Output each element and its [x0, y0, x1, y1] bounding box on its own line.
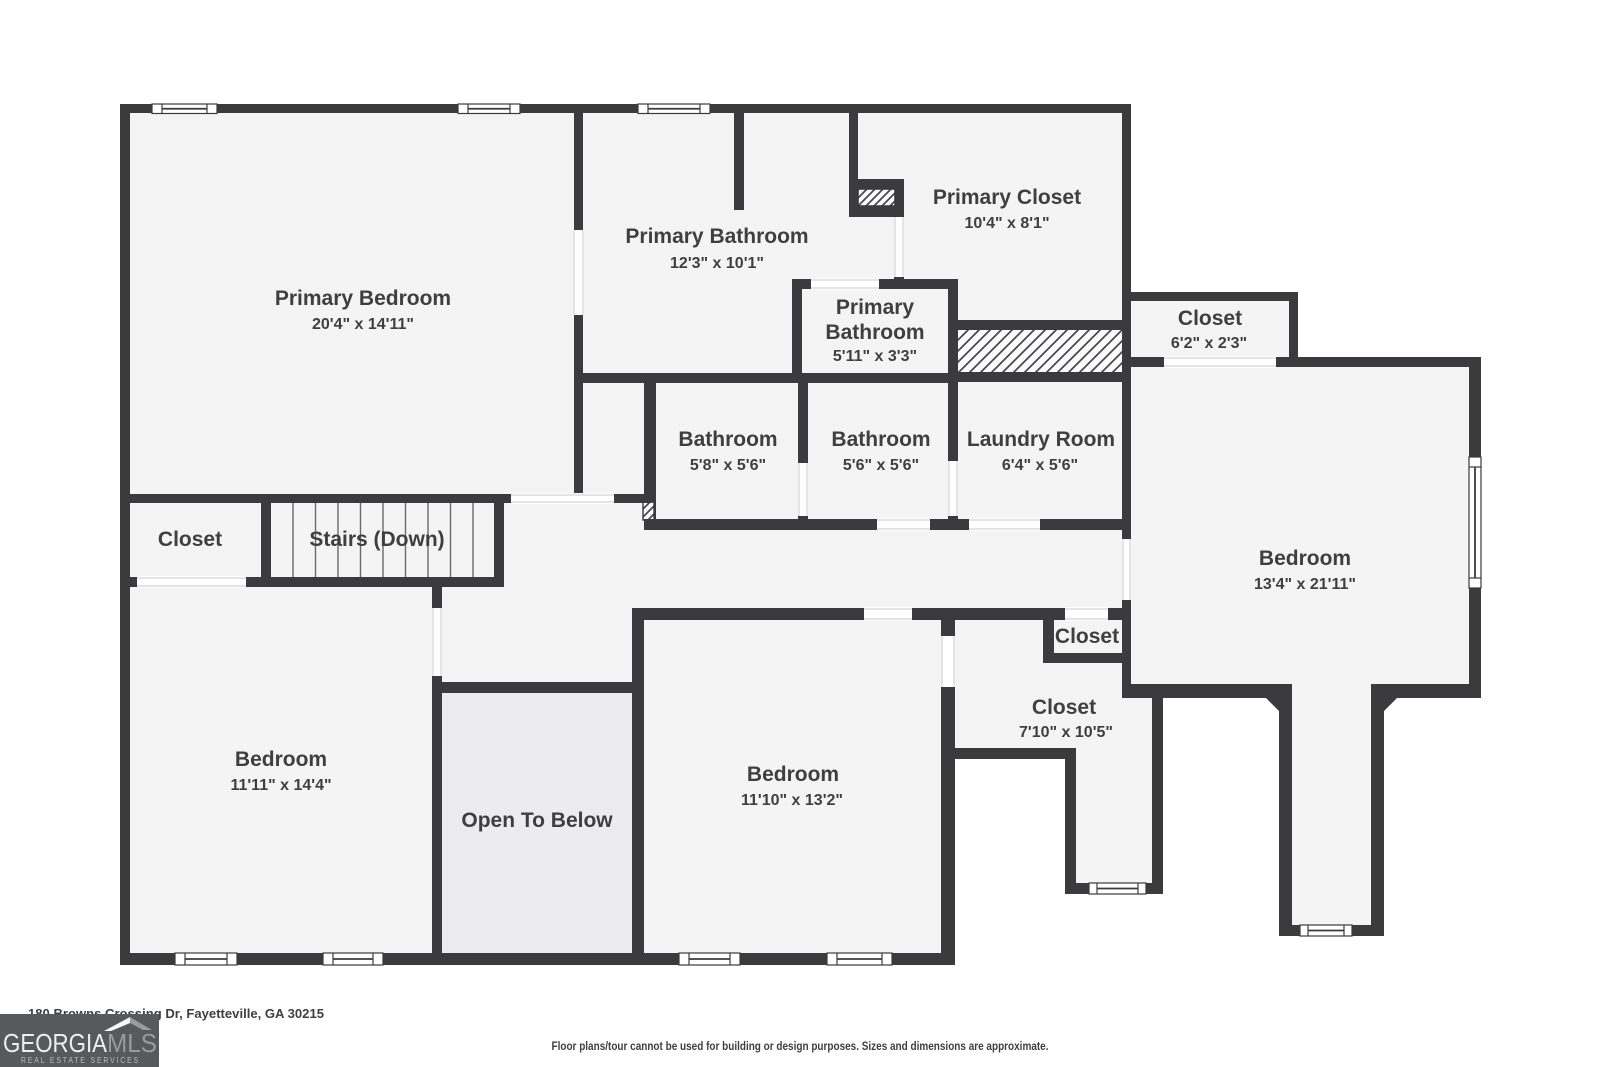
svg-text:11'11" x 14'4": 11'11" x 14'4" — [230, 777, 331, 794]
svg-text:5'8" x 5'6": 5'8" x 5'6" — [690, 457, 766, 474]
svg-text:Bedroom: Bedroom — [235, 748, 327, 771]
svg-text:Floor plans/tour cannot be use: Floor plans/tour cannot be used for buil… — [552, 1041, 1049, 1053]
svg-text:MLS: MLS — [107, 1028, 157, 1058]
svg-text:12'3" x 10'1": 12'3" x 10'1" — [670, 255, 764, 272]
svg-text:Bathroom: Bathroom — [831, 428, 930, 451]
svg-text:Bedroom: Bedroom — [747, 763, 839, 786]
svg-text:Closet: Closet — [1032, 696, 1096, 719]
svg-text:Open To Below: Open To Below — [461, 809, 613, 832]
svg-text:REAL ESTATE SERVICES: REAL ESTATE SERVICES — [21, 1056, 140, 1065]
svg-text:Closet: Closet — [158, 528, 222, 551]
svg-text:Closet: Closet — [1178, 307, 1242, 330]
svg-text:11'10" x 13'2": 11'10" x 13'2" — [741, 792, 843, 809]
svg-text:Primary Bedroom: Primary Bedroom — [275, 287, 451, 310]
svg-text:Primary Closet: Primary Closet — [933, 186, 1081, 209]
svg-text:Laundry Room: Laundry Room — [967, 428, 1115, 451]
svg-text:Bedroom: Bedroom — [1259, 547, 1351, 570]
svg-text:Primary Bathroom: Primary Bathroom — [625, 225, 808, 248]
svg-text:5'11" x 3'3": 5'11" x 3'3" — [833, 348, 917, 365]
svg-text:Closet: Closet — [1055, 625, 1119, 648]
svg-text:6'4" x 5'6": 6'4" x 5'6" — [1002, 457, 1078, 474]
svg-text:7'10" x 10'5": 7'10" x 10'5" — [1019, 724, 1113, 741]
svg-text:10'4" x 8'1": 10'4" x 8'1" — [964, 215, 1049, 232]
svg-text:Primary: Primary — [836, 296, 915, 319]
svg-text:5'6" x 5'6": 5'6" x 5'6" — [843, 457, 919, 474]
svg-text:13'4" x 21'11": 13'4" x 21'11" — [1254, 576, 1356, 593]
svg-text:Bathroom: Bathroom — [825, 321, 924, 344]
svg-text:GEORGIA: GEORGIA — [3, 1028, 108, 1058]
svg-text:20'4" x 14'11": 20'4" x 14'11" — [312, 316, 414, 333]
svg-text:Stairs (Down): Stairs (Down) — [309, 528, 444, 551]
svg-text:6'2" x 2'3": 6'2" x 2'3" — [1171, 335, 1247, 352]
svg-text:Bathroom: Bathroom — [678, 428, 777, 451]
